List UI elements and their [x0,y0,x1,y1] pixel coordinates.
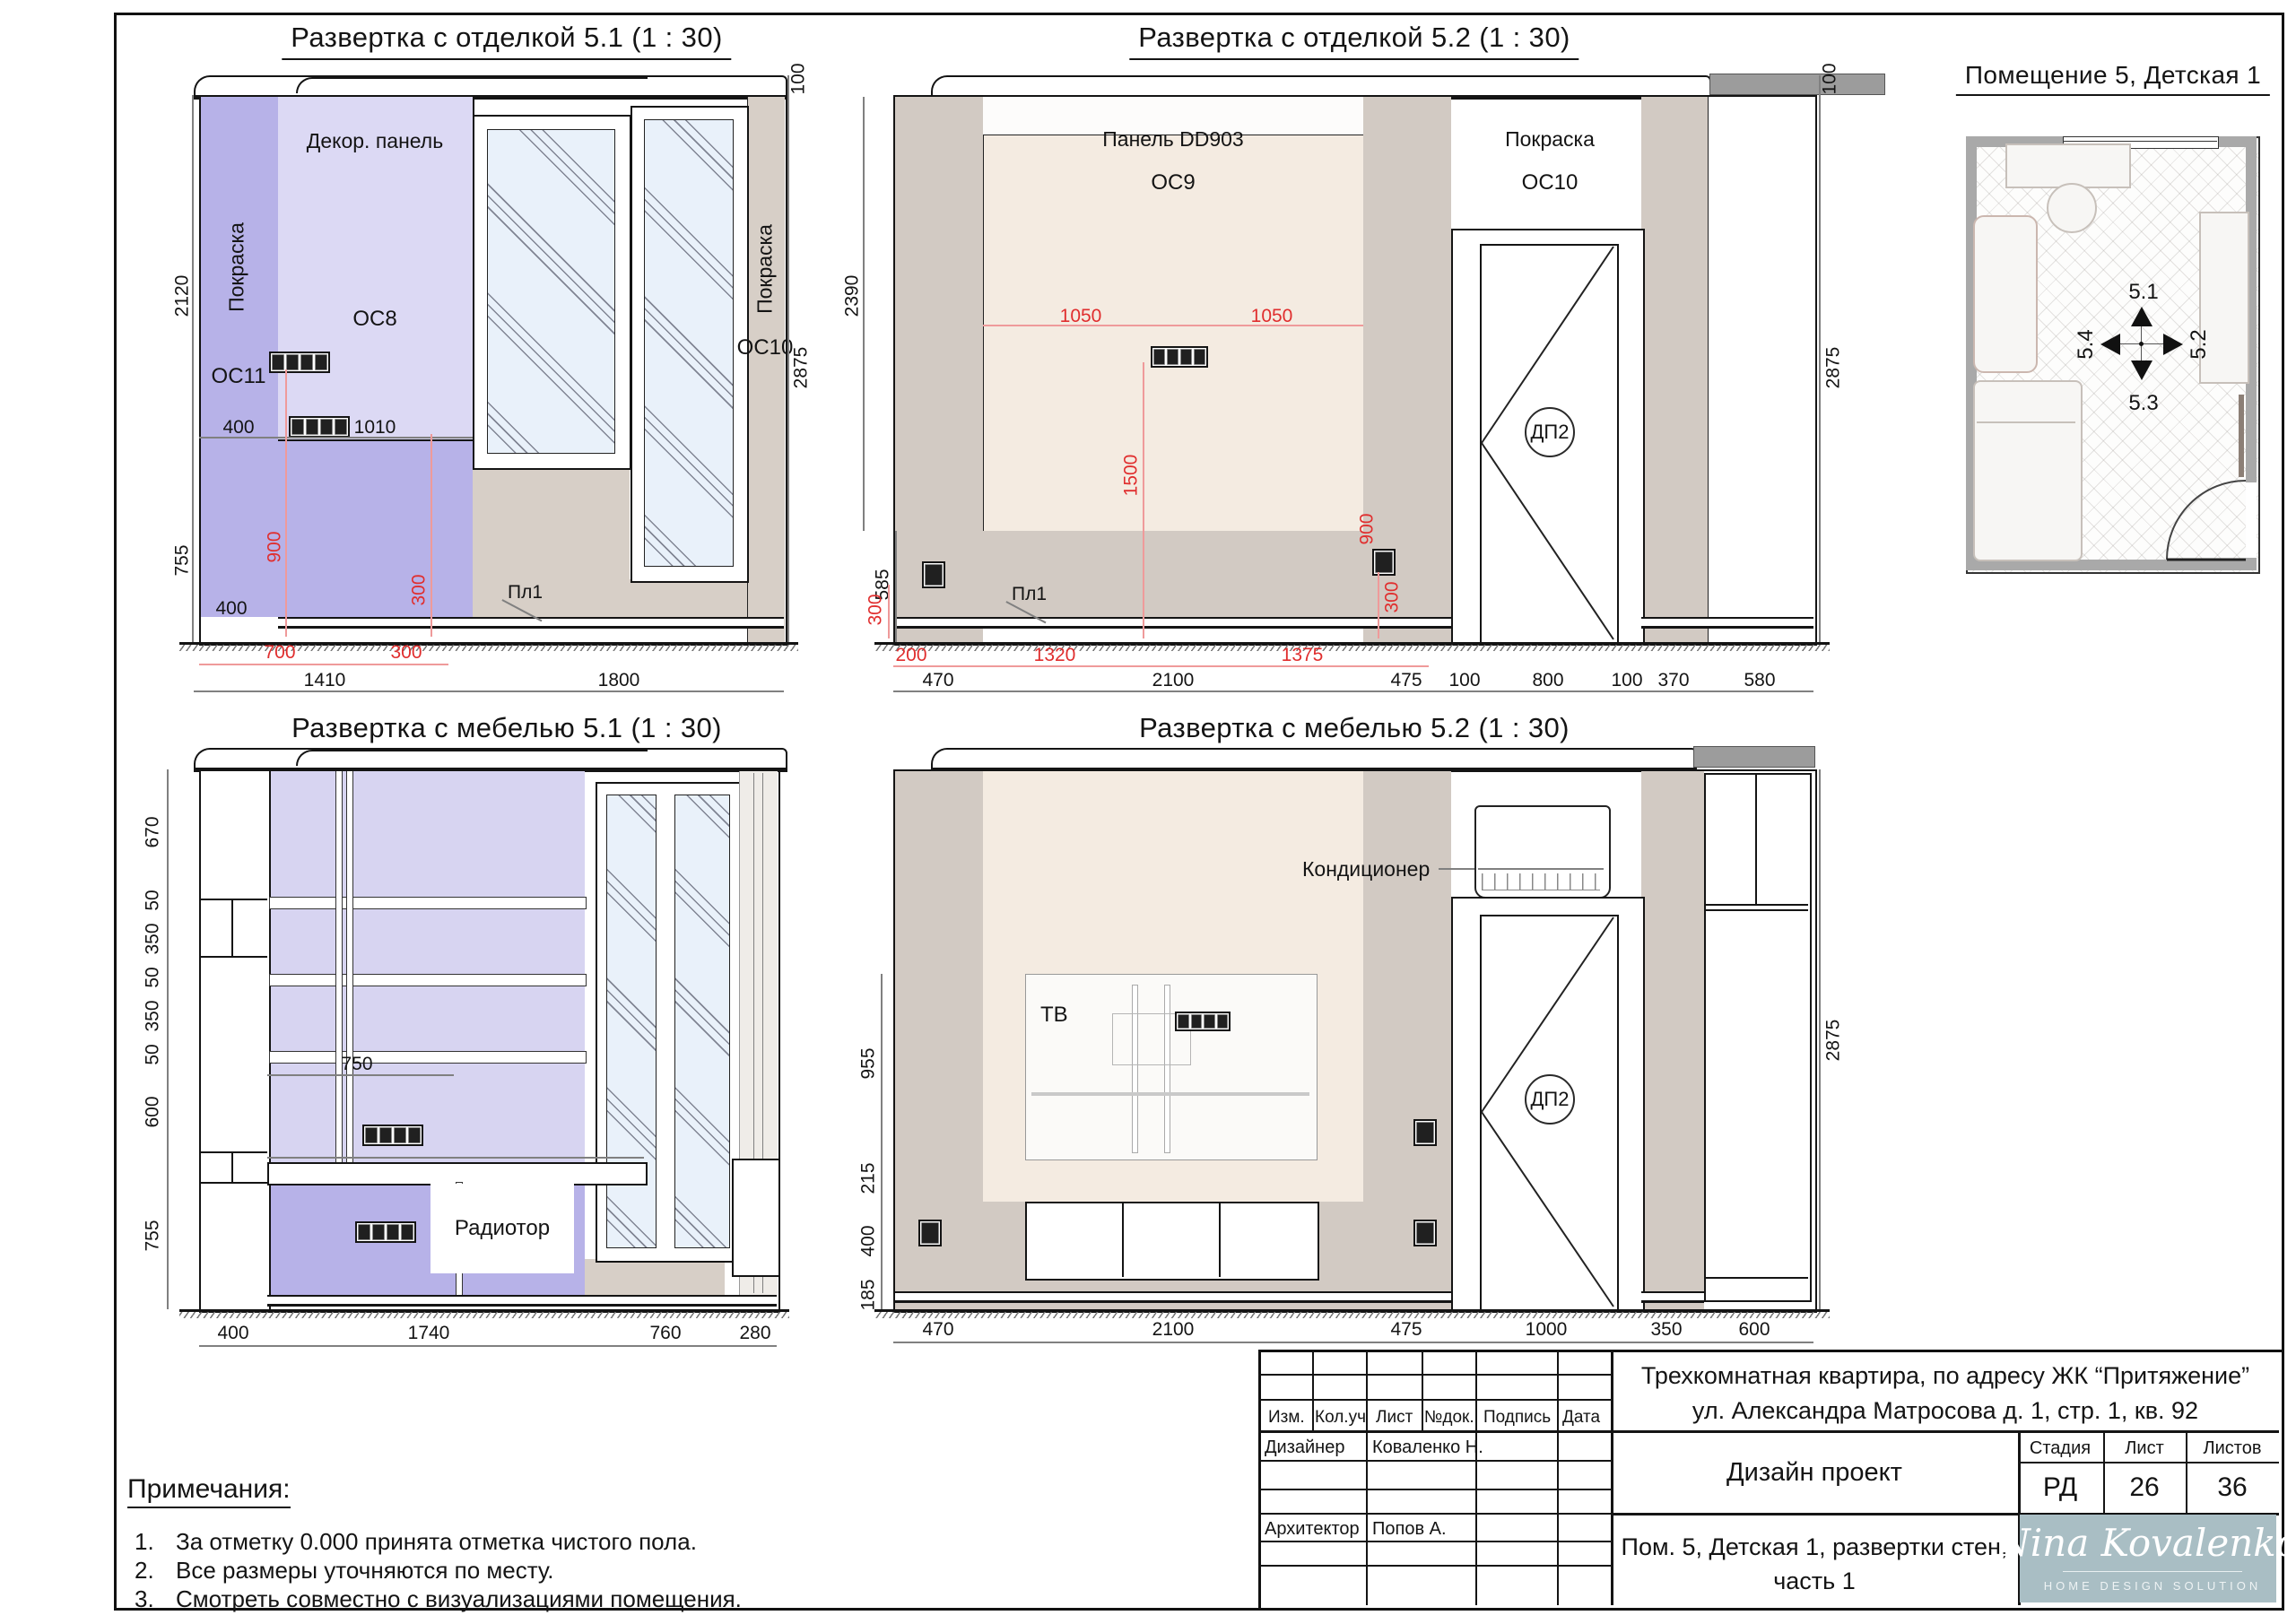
stamp-sheet-title-line1: Пом. 5, Детская 1, развертки стен, [1622,1535,2008,1559]
dim-label: 2875 [792,347,811,389]
dim-label: 475 [1390,671,1422,690]
stamp-sheet-header: Лист [2125,1439,2163,1457]
plan-door-arc [2165,479,2248,561]
d2-ceiling-bar [1709,74,1885,95]
dim-label: 470 [922,671,953,690]
dim-label: 185 [859,1279,878,1310]
plan-marker-right [2163,334,2183,355]
stamp-doc-type: Дизайн проект [1726,1460,1902,1486]
d1-paint-right-label: Покраска [755,224,776,314]
d1-paint-left-label: Покраска [227,222,248,312]
note-number: 1. [135,1530,154,1553]
dim-label: 1050 [1060,307,1102,326]
plan-bed [1973,380,2083,561]
dim-label: 1000 [1526,1320,1568,1339]
d2-paint-label: Покраска [1505,129,1595,150]
dim-label: 1050 [1251,307,1293,326]
dim-label: 400 [859,1225,878,1256]
dim-label: 280 [739,1324,770,1342]
dim-label: 300 [866,594,885,625]
dim-label: 100 [789,63,808,94]
d2-panel-label: Панель DD903 [1102,129,1243,150]
dim-label: 760 [649,1324,681,1342]
dim-label: 50 [143,890,162,910]
d3-wall-outline [199,769,780,1313]
dim-label: 1740 [408,1324,450,1342]
d2-socket-left [922,561,945,588]
dim-label: 100 [1611,671,1642,690]
d2-tv-socket-block [1151,346,1208,368]
dim-label: 470 [922,1320,953,1339]
dim-label: 300 [1383,581,1402,612]
logo-name: Nina Kovalenko [1997,1524,2296,1562]
stamp-architect-name: Попов А. [1372,1519,1447,1540]
d1-decor-panel-label: Декор. панель [307,131,443,152]
dim-label: 1010 [354,418,396,437]
stamp-col-izm: Изм. [1268,1408,1305,1428]
d4-cornice [931,748,1697,772]
d1-title: Развертка с отделкой 5.1 (1 : 30) [282,22,731,60]
d4-ceiling-bar [1693,746,1815,768]
dim-label: 1375 [1282,646,1324,664]
dim-label: 400 [215,599,247,618]
dim-label: 400 [222,418,254,437]
dim-label: 2875 [1824,347,1843,389]
dim-label: 800 [1532,671,1563,690]
dim-label: 580 [1744,671,1775,690]
stamp-sheet-title-line2: часть 1 [1773,1569,1856,1594]
plan-sofa [1973,215,2038,373]
plan-marker-5.4: 5.4 [2075,329,2097,359]
d2-pl1-label: Пл1 [1012,585,1047,604]
dim-label: 370 [1657,671,1689,690]
dim-label: 2100 [1152,1320,1195,1339]
plan-chair [2047,183,2097,233]
dim-label: 400 [217,1324,248,1342]
stamp-col-podpis: Подпись [1483,1408,1551,1428]
dim-label: 670 [143,816,162,847]
stamp-project-line1: Трехкомнатная квартира, по адресу ЖК “Пр… [1641,1364,2249,1388]
d4-floor-hatch [874,1309,1830,1318]
stamp-designer-role: Дизайнер [1265,1437,1344,1458]
d1-pl1-label: Пл1 [508,583,543,602]
dim-label: 1410 [304,671,346,690]
plan-marker-dot [2139,342,2144,346]
dim-label: 755 [143,1220,162,1251]
dim-label: 350 [143,923,162,954]
dim-label: 750 [341,1055,372,1073]
plan-desk [2005,143,2131,188]
logo-subtitle: HOME DESIGN SOLUTION [2044,1580,2262,1592]
dim-label: 350 [1650,1320,1682,1339]
stamp-architect-role: Архитектор [1265,1519,1360,1540]
stamp-sheets-header: Листов [2204,1439,2262,1457]
plan-tv [2239,395,2244,477]
d2-wall-outline [893,95,1817,646]
stamp-project-line2: ул. Александра Матросова д. 1, стр. 1, к… [1692,1399,2198,1423]
d2-os10-label: ОС10 [1522,172,1578,194]
stamp-col-list: Лист [1376,1408,1413,1428]
dim-label: 2390 [843,275,862,317]
dim-label: 955 [859,1047,878,1079]
d3-floor-hatch [179,1309,789,1318]
d2-switch-right [1372,549,1396,576]
note-text: Все размеры уточняются по месту. [176,1559,554,1582]
plan-title: Помещение 5, Детская 1 [1956,61,2270,96]
d3-cornice-arc [296,750,648,766]
dim-label: 50 [143,967,162,987]
stamp-stage-header: Стадия [2030,1439,2091,1457]
dim-label: 215 [859,1162,878,1194]
dim-label: 300 [390,643,422,662]
d3-title: Развертка с мебелью 5.1 (1 : 30) [283,712,731,751]
d2-title: Развертка с отделкой 5.2 (1 : 30) [1129,22,1578,60]
d1-os8-label: ОС8 [352,308,396,330]
dim-label: 700 [264,643,295,662]
dim-label: 900 [265,531,284,562]
plan-marker-5.2: 5.2 [2188,329,2210,359]
dim-label: 755 [173,544,192,576]
dim-label: 2875 [1824,1020,1843,1062]
dim-label: 2100 [1152,671,1195,690]
stamp-col-ndok: №док. [1424,1408,1474,1428]
stamp-col-data: Дата [1562,1408,1600,1428]
plan-marker-5.3: 5.3 [2128,393,2158,414]
d2-floor-hatch [874,642,1830,651]
note-text: Смотреть совместно с визуализациями поме… [176,1587,742,1611]
plan-marker-down [2131,360,2152,380]
dim-label: 900 [1358,513,1377,544]
dim-label: 2120 [173,275,192,317]
plan-marker-left [2100,334,2120,355]
dim-label: 350 [143,1000,162,1031]
d1-socket-block-2 [289,416,350,438]
plan-marker-up [2131,307,2152,326]
dim-label: 1320 [1034,646,1076,664]
dim-label: 600 [1738,1320,1770,1339]
dim-label: 300 [410,574,429,605]
stamp-col-koluch: Кол.уч [1315,1408,1366,1428]
d1-socket-block-1 [269,352,330,373]
d1-os10-label: ОС10 [737,337,794,359]
stamp-stage-value: РД [2043,1474,2077,1501]
d1-cornice-arc [296,77,648,93]
d2-os9-label: ОС9 [1151,172,1195,194]
d4-title: Развертка с мебелью 5.2 (1 : 30) [1130,712,1578,751]
d4-wall-outline [893,769,1817,1313]
d1-os11-label: ОС11 [212,366,266,387]
dim-label: 100 [1448,671,1480,690]
dim-label: 600 [143,1096,162,1127]
dim-label: 1800 [598,671,640,690]
dim-label: 100 [1821,63,1839,94]
notes-title: Примечания: [127,1476,291,1508]
drawing-sheet: Развертка с отделкой 5.1 (1 : 30) Покрас… [0,0,2296,1624]
stamp-sheet-value: 26 [2129,1474,2159,1501]
dim-label: 1500 [1122,455,1141,497]
note-number: 2. [135,1559,154,1582]
stamp-designer-name: Коваленко Н. [1372,1437,1483,1458]
note-number: 3. [135,1587,154,1611]
stamp-sheets-value: 36 [2217,1474,2247,1501]
dim-label: 200 [895,646,926,664]
note-text: За отметку 0.000 принята отметка чистого… [176,1530,697,1553]
plan-marker-5.1: 5.1 [2128,282,2158,303]
dim-label: 475 [1390,1320,1422,1339]
dim-label: 50 [143,1044,162,1064]
